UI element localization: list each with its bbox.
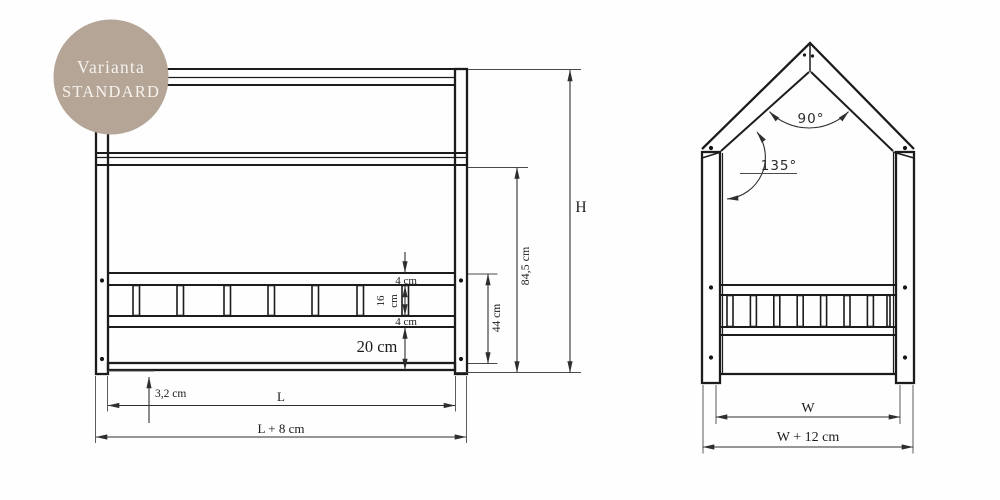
- side-headboard-bottom-rail: [720, 327, 896, 335]
- front-guard-slats: [133, 286, 409, 316]
- dim-peak-angle: 90°: [798, 111, 825, 127]
- variant-badge: Varianta STANDARD: [54, 20, 169, 135]
- technical-drawing-page: 4 cm 16 cm 4 cm 20 cm 3,2 cm L L + 8 cm: [0, 0, 1000, 500]
- dim-rail-bottom-thickness: 4 cm: [395, 316, 417, 328]
- side-left-post: [702, 152, 720, 383]
- dim-outer-width: W + 12 cm: [777, 430, 840, 445]
- front-view: 4 cm 16 cm 4 cm 20 cm 3,2 cm L L + 8 cm: [96, 69, 587, 443]
- side-right-post: [896, 152, 914, 383]
- dim-slat-height-unit: cm: [388, 294, 400, 308]
- dim-inner-width: W: [801, 401, 815, 416]
- front-wall-top-rail: [96, 153, 467, 165]
- front-dim-foot: [108, 371, 154, 423]
- dim-bottom-gap: 20 cm: [357, 337, 398, 356]
- front-base-beam: [108, 363, 455, 370]
- dim-eave-angle: 135°: [761, 158, 798, 174]
- badge-line1: Varianta: [77, 57, 145, 77]
- side-roof: [702, 43, 914, 158]
- dim-side-height: 84,5 cm: [518, 246, 532, 285]
- dim-guard-height: 44 cm: [491, 304, 503, 332]
- side-headboard-top-rail: [720, 285, 896, 295]
- bed-spec-diagram: 4 cm 16 cm 4 cm 20 cm 3,2 cm L L + 8 cm: [0, 0, 1000, 500]
- front-right-post: [455, 69, 467, 374]
- dim-rail-top-thickness: 4 cm: [395, 275, 417, 287]
- side-view: 90° 135° W W + 12 cm: [702, 43, 914, 454]
- badge-line2: STANDARD: [62, 82, 160, 101]
- side-screw-dots: [709, 53, 907, 359]
- dim-slat-height: 16 cm: [375, 294, 400, 308]
- eave-angle-arc: [727, 132, 765, 199]
- dim-inner-length: L: [277, 389, 285, 404]
- front-dim-H: [456, 70, 581, 373]
- dim-total-height: H: [575, 199, 586, 216]
- dim-floor-clearance: 3,2 cm: [155, 388, 186, 400]
- badge-circle: [54, 20, 169, 135]
- side-headboard-slats: [727, 296, 890, 327]
- dim-outer-length: L + 8 cm: [258, 421, 305, 436]
- dim-slat-height-num: 16: [375, 295, 387, 307]
